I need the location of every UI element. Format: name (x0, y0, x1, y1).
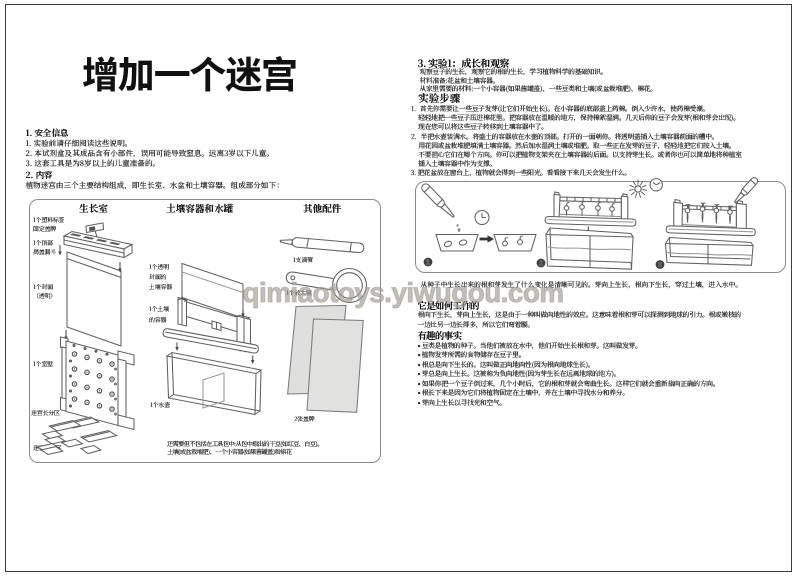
svg-text:1: 1 (426, 259, 430, 266)
svg-text:3: 3 (658, 262, 662, 269)
svg-text:2: 2 (539, 260, 543, 267)
